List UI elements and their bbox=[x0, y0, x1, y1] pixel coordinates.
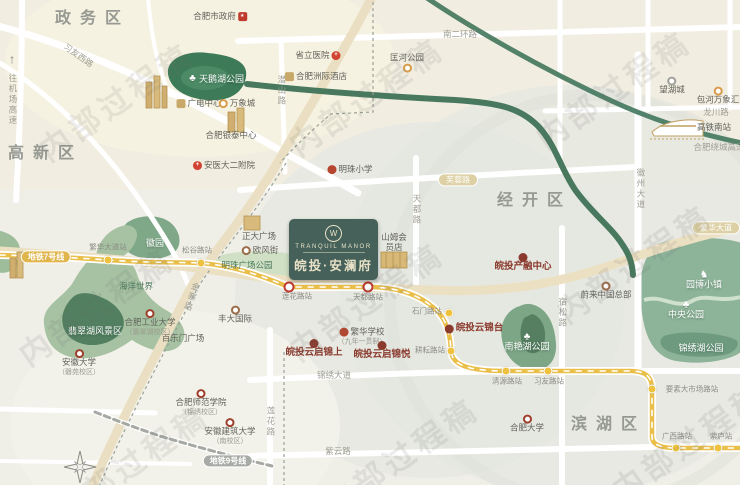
park-yuanbo-town-text: 园博小镇 bbox=[686, 279, 722, 289]
hosp-icon: + bbox=[193, 161, 202, 170]
station-fanhuadadao: 繁华大道站 bbox=[89, 244, 127, 253]
road-raocheng-expressway: 合肥绕城高速 bbox=[693, 143, 740, 153]
station-songgulu: 松谷路站 bbox=[182, 247, 212, 256]
estate-yunjintai: 皖投云锦台 bbox=[445, 324, 504, 335]
ringo-icon bbox=[402, 63, 411, 72]
road-raocheng-expressway-text: 合肥绕城高速 bbox=[693, 143, 740, 153]
metro-line9-badge: 地铁9号线 bbox=[203, 454, 253, 467]
poi-hefei-university-text: 合肥大学 bbox=[510, 424, 544, 434]
poi-zhengda-plaza: 正大广场 bbox=[242, 232, 276, 242]
poi-broadcast-center-text: 广电中心 bbox=[187, 99, 221, 109]
poi-anhui-jianzhu-university-subtext: （南校区） bbox=[212, 438, 247, 446]
station-gengyunlu: 耕耘路站 bbox=[415, 347, 445, 356]
station-shimenlu-text: 石门路站 bbox=[412, 308, 442, 317]
poi-yintai-center: 合肥银泰中心 bbox=[205, 131, 256, 141]
poi-hefei-university: 合肥大学 bbox=[510, 415, 544, 434]
ringbr-icon bbox=[242, 246, 251, 255]
park-yuanbo-town: ♞园博小镇 bbox=[686, 270, 722, 289]
poi-fengda-international-text: 丰大国际 bbox=[218, 315, 252, 325]
ringo-icon bbox=[219, 99, 228, 108]
poi-anhui-jianzhu-university-text: 安徽建筑大学 bbox=[204, 427, 255, 437]
project-name-cn: 皖投·安澜府 bbox=[294, 255, 373, 274]
district-zhengwu-text: 政务区 bbox=[55, 10, 130, 28]
poi-fanhua-school-text: 繁华学校 bbox=[350, 328, 384, 338]
station-dot-shimenlu bbox=[445, 309, 454, 318]
road-nanerhuanlu-text: 南二环路 bbox=[443, 30, 477, 40]
poi-oufeng-street-text: 欧风街 bbox=[253, 246, 279, 256]
road-pill-fanhuadadao-text: 繁华大道 bbox=[692, 221, 740, 234]
park-nanyanhu: ♣南艳湖公园 bbox=[504, 332, 549, 351]
road-susonglu-text: 宿松路 bbox=[557, 297, 567, 329]
district-gaoxin-text: 高新区 bbox=[8, 145, 83, 163]
station-dot-zilu bbox=[714, 444, 723, 453]
station-dot-tiandulu bbox=[363, 282, 374, 293]
station-yaosudashichang-text: 要素大市场路站 bbox=[666, 386, 719, 395]
poi-provincial-hospital: 省立医院+ bbox=[295, 51, 340, 61]
estate-yunqi-jinyue-text: 皖投云启锦悦 bbox=[353, 350, 410, 361]
poi-anhui-university: 安徽大学（磬苑校区） bbox=[58, 349, 100, 377]
sch-icon bbox=[339, 328, 348, 337]
station-lianhualu-text: 莲花路站 bbox=[282, 293, 312, 302]
poi-broadcast-center: 广电中心 bbox=[176, 99, 221, 109]
station-dot-xiyoulu bbox=[544, 367, 553, 376]
estate-chanrong-center-text: 皖投产融中心 bbox=[494, 262, 551, 273]
road-tiandulu: 天都路 bbox=[411, 194, 421, 226]
poi-mixc-mall-text: 包河万象汇 bbox=[697, 96, 740, 106]
station-xiyoulu: 习友路站 bbox=[534, 378, 564, 387]
road-pill-furonglu-text: 芙蓉路 bbox=[438, 173, 478, 186]
deer-icon: ♞ bbox=[699, 270, 708, 279]
station-zilu: 紫庐站 bbox=[710, 433, 733, 442]
road-jinxiudadao: 锦绣大道 bbox=[317, 371, 351, 381]
road-ziyunlu: 紫云路 bbox=[325, 447, 351, 457]
metro-line7-badge: 地铁7号线 bbox=[21, 250, 71, 263]
poi-hfut-text: 合肥工业大学 bbox=[124, 318, 175, 328]
station-dot-gengyunlu bbox=[447, 347, 456, 356]
road-lianhualu: 莲花路 bbox=[265, 406, 275, 438]
station-dot-fanhuadadao bbox=[104, 256, 113, 265]
estate-yunqi-jinshang-text: 皖投云启锦上 bbox=[285, 348, 342, 359]
park-huiyuan: 徽园 bbox=[146, 238, 164, 248]
estate-yunqi-jinyue: 皖投云启锦悦 bbox=[353, 341, 410, 361]
poi-yintai-center-text: 合肥银泰中心 bbox=[205, 131, 256, 141]
road-susonglu: 宿松路 bbox=[557, 297, 567, 329]
station-zilu-text: 紫庐站 bbox=[710, 433, 733, 442]
poi-kuanghe-park-text: 匡河公园 bbox=[390, 54, 424, 64]
poi-intercontinental-hotel: 合肥洲际酒店 bbox=[285, 72, 347, 82]
station-dot-guangxilu bbox=[672, 444, 681, 453]
poi-hefei-normal-college: 合肥师范学院（锦绣校区） bbox=[175, 389, 226, 417]
station-dot-yaosudashichang bbox=[648, 385, 657, 394]
gov-icon: ★ bbox=[238, 12, 247, 21]
estate-chanrong-center: 皖投产融中心 bbox=[494, 253, 551, 273]
hosp-icon: + bbox=[332, 51, 341, 60]
park-jinxiuhu: 锦绣湖公园 bbox=[678, 343, 723, 353]
station-songgulu-text: 松谷路站 bbox=[182, 247, 212, 256]
road-longchuanlu: 龙川路 bbox=[703, 108, 729, 118]
poi-south-railway-station-text: 高铁南站 bbox=[697, 123, 731, 133]
station-tiandulu: 天都路站 bbox=[353, 294, 383, 303]
poi-provincial-hospital-text: 省立医院 bbox=[295, 51, 329, 61]
poi-hfut-subtext: （翡翠湖校区） bbox=[125, 329, 174, 337]
poi-anyi-2nd-hospital-text: 安医大二附院 bbox=[204, 161, 255, 171]
logo-divider bbox=[303, 252, 365, 253]
poi-wanghucheng: 望湖城 bbox=[659, 77, 685, 96]
poi-oufeng-street: 欧风街 bbox=[242, 246, 279, 256]
park-huiyuan-text: 徽园 bbox=[146, 238, 164, 248]
poi-anyi-2nd-hospital: +安医大二附院 bbox=[193, 161, 255, 171]
project-crest-icon: W bbox=[325, 225, 342, 242]
road-airport-expressway: 往机场高速 bbox=[7, 74, 17, 127]
park-feicuihu: 翡翠湖风景区 bbox=[68, 326, 122, 336]
road-huizhoudadao-text: 徽州大道 bbox=[635, 168, 645, 210]
park-tianehu-text: 天鹅湖公园 bbox=[199, 74, 244, 84]
poi-hfut: 合肥工业大学（翡翠湖校区） bbox=[124, 309, 175, 337]
tree-icon: ♣ bbox=[188, 75, 197, 84]
poi-mixc-city-text: 万象城 bbox=[230, 99, 256, 109]
park-tianehu: ♣天鹅湖公园 bbox=[188, 74, 244, 84]
district-zhengwu: 政务区 bbox=[46, 10, 130, 28]
station-xiyoulu-text: 习友路站 bbox=[534, 378, 564, 387]
road-nanerhuanlu: 南二环路 bbox=[443, 30, 477, 40]
metro-line9-badge-text: 地铁9号线 bbox=[203, 454, 253, 467]
station-dot-qingyuanlu bbox=[502, 367, 511, 376]
district-binhu-text: 滨湖区 bbox=[571, 416, 646, 434]
road-pill-fanhuadadao: 繁华大道 bbox=[692, 221, 740, 234]
poi-fengda-international: 丰大国际 bbox=[218, 306, 252, 325]
station-qingyuanlu: 清源路站 bbox=[492, 378, 522, 387]
poi-mingzhu-primary-school: 明珠小学 bbox=[327, 165, 372, 175]
road-lianhualu-text: 莲花路 bbox=[265, 406, 275, 438]
park-jinxiuhu-text: 锦绣湖公园 bbox=[678, 343, 723, 353]
poi-anhui-university-text: 安徽大学 bbox=[62, 358, 96, 368]
poi-kuanghe-park: 匡河公园 bbox=[390, 54, 424, 73]
station-fanhuadadao-text: 繁华大道站 bbox=[89, 244, 127, 253]
poi-mingzhu-primary-school-text: 明珠小学 bbox=[338, 165, 372, 175]
tree-icon: ♣ bbox=[681, 300, 690, 309]
project-logo: W TRANQUIL MANOR 皖投·安澜府 bbox=[289, 219, 378, 280]
road-jinxiudadao-text: 锦绣大道 bbox=[317, 371, 351, 381]
station-dot-songgulu bbox=[197, 259, 206, 268]
station-gengyunlu-text: 耕耘路站 bbox=[415, 347, 445, 356]
poi-anhui-jianzhu-university: 安徽建筑大学（南校区） bbox=[204, 418, 255, 446]
station-guangxilu-text: 广西路站 bbox=[662, 433, 692, 442]
estate-yunjintai-text: 皖投云锦台 bbox=[456, 324, 504, 335]
poi-south-railway-station: 高铁南站 bbox=[697, 123, 731, 133]
park-mingzhuguangchang: 明珠广场公园 bbox=[221, 261, 272, 271]
station-qingyuanlu-text: 清源路站 bbox=[492, 378, 522, 387]
district-gaoxin: 高新区 bbox=[0, 145, 83, 163]
road-airport-expressway-text: 往机场高速 bbox=[7, 74, 17, 127]
poi-mixc-mall: 包河万象汇 bbox=[697, 87, 740, 106]
poi-city-government-text: 合肥市政府 bbox=[193, 12, 236, 22]
park-central-text: 中央公园 bbox=[668, 309, 704, 319]
location-map: 政务区高新区经开区滨湖区习友西路南二环路龙川路合肥绕城高速锦绣大道紫云路潜山路金… bbox=[0, 0, 740, 485]
station-guangxilu: 广西路站 bbox=[662, 433, 692, 442]
airport-direction-arrow-text: ↑ bbox=[9, 53, 16, 68]
tan-icon bbox=[285, 72, 294, 81]
poi-hefei-normal-college-subtext: （锦绣校区） bbox=[180, 409, 222, 417]
estate-yunqi-jinshang: 皖投云启锦上 bbox=[285, 339, 342, 359]
sch-icon bbox=[327, 165, 336, 174]
poi-nio-hq-text: 蔚来中国总部 bbox=[580, 291, 631, 301]
road-pill-furonglu: 芙蓉路 bbox=[438, 173, 478, 186]
station-yaosudashichang: 要素大市场路站 bbox=[666, 386, 719, 395]
project-name-en: TRANQUIL MANOR bbox=[295, 244, 372, 250]
road-longchuanlu-text: 龙川路 bbox=[703, 108, 729, 118]
poi-city-government: 合肥市政府★ bbox=[193, 12, 247, 22]
road-tiandulu-text: 天都路 bbox=[411, 194, 421, 226]
poi-nio-hq: 蔚来中国总部 bbox=[580, 282, 631, 301]
park-central: ♣中央公园 bbox=[668, 300, 704, 319]
station-tiandulu-text: 天都路站 bbox=[353, 294, 383, 303]
park-feicuihu-text: 翡翠湖风景区 bbox=[68, 326, 122, 336]
road-huizhoudadao: 徽州大道 bbox=[635, 168, 645, 210]
road-ziyunlu-text: 紫云路 bbox=[325, 447, 351, 457]
park-mingzhuguangchang-text: 明珠广场公园 bbox=[221, 261, 272, 271]
station-shimenlu: 石门路站 bbox=[412, 308, 442, 317]
poi-ocean-world-text: 海洋世界 bbox=[119, 282, 153, 292]
poi-sams-club-text: 山姆会员店 bbox=[381, 233, 407, 253]
metro-line7-badge-text: 地铁7号线 bbox=[21, 250, 71, 263]
poi-sams-club: 山姆会员店 bbox=[381, 233, 407, 253]
poi-hefei-normal-college-text: 合肥师范学院 bbox=[175, 398, 226, 408]
station-lianhualu: 莲花路站 bbox=[282, 293, 312, 302]
district-jingkai-text: 经开区 bbox=[497, 192, 572, 210]
poi-ocean-world: 海洋世界 bbox=[119, 282, 153, 292]
tan-icon bbox=[176, 99, 185, 108]
poi-wanghucheng-text: 望湖城 bbox=[659, 86, 685, 96]
district-binhu: 滨湖区 bbox=[562, 416, 646, 434]
poi-zhengda-plaza-text: 正大广场 bbox=[242, 232, 276, 242]
tree-icon: ♣ bbox=[522, 332, 531, 341]
poi-mixc-city: 万象城 bbox=[219, 99, 256, 109]
airport-direction-arrow: ↑ bbox=[9, 53, 16, 68]
brand-icon bbox=[445, 324, 454, 333]
district-jingkai: 经开区 bbox=[488, 192, 572, 210]
poi-intercontinental-hotel-text: 合肥洲际酒店 bbox=[296, 72, 347, 82]
park-nanyanhu-text: 南艳湖公园 bbox=[504, 341, 549, 351]
poi-anhui-university-subtext: （磬苑校区） bbox=[58, 369, 100, 377]
